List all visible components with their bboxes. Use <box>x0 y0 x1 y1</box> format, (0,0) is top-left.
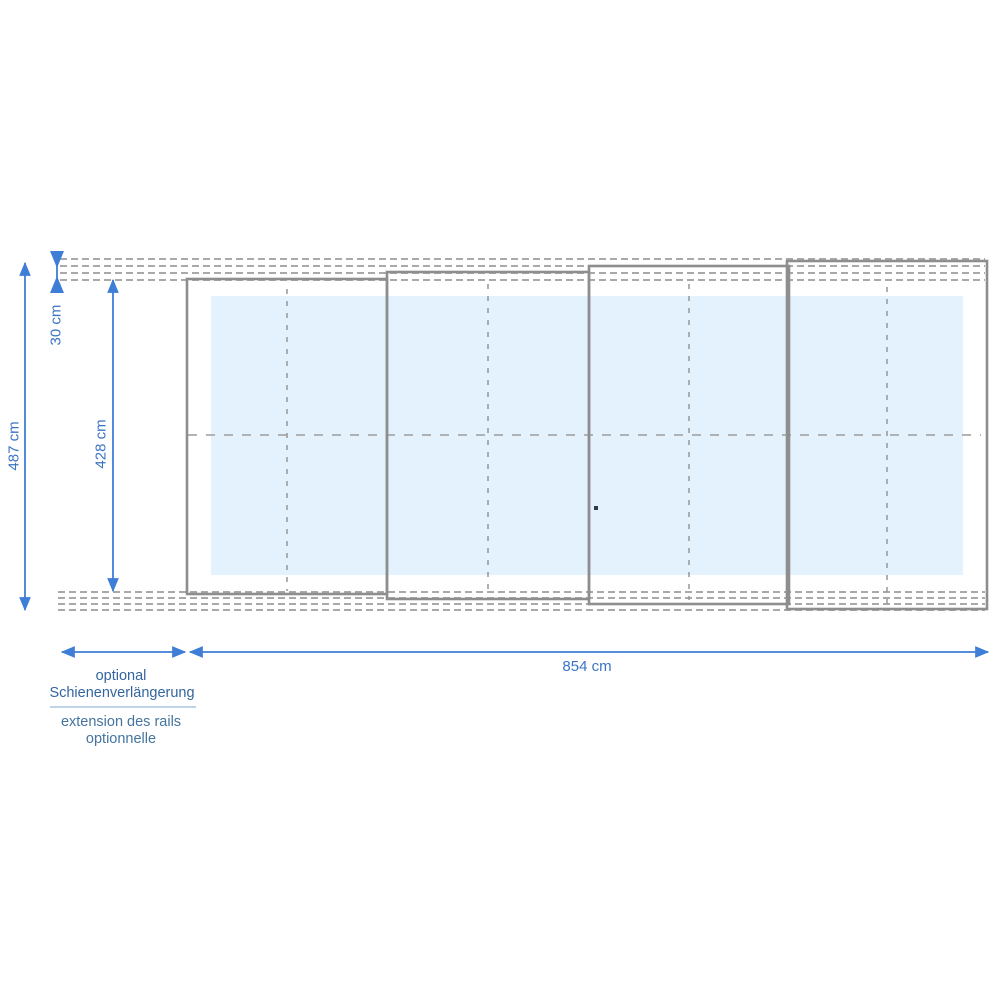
dimension-overall-height: 487 cm <box>6 263 26 610</box>
dimension-label-487: 487 cm <box>6 421 23 470</box>
rail-extension-label-de-2: Schienenverlängerung <box>49 685 194 701</box>
rail-extension-label-fr-1: extension des rails <box>61 714 181 730</box>
dimension-enclosure-height: 428 cm <box>93 280 114 591</box>
diagram-canvas: 487 cm 30 cm 428 cm optional Schienenver… <box>0 0 1000 1000</box>
enclosure-plan-diagram: 487 cm 30 cm 428 cm optional Schienenver… <box>0 0 1000 1000</box>
arrowhead-up-icon <box>50 276 64 293</box>
dimension-overall-length: 854 cm <box>190 652 988 675</box>
rail-extension-label-fr-2: optionnelle <box>86 731 156 747</box>
dimension-label-30: 30 cm <box>48 305 65 346</box>
dimension-label-428: 428 cm <box>93 419 110 468</box>
dimension-label-854: 854 cm <box>562 658 611 675</box>
dimension-rail-extension: optional Schienenverlängerung extension … <box>49 652 196 747</box>
door-handle-dot <box>594 506 598 510</box>
rail-extension-label-de-1: optional <box>96 668 147 684</box>
